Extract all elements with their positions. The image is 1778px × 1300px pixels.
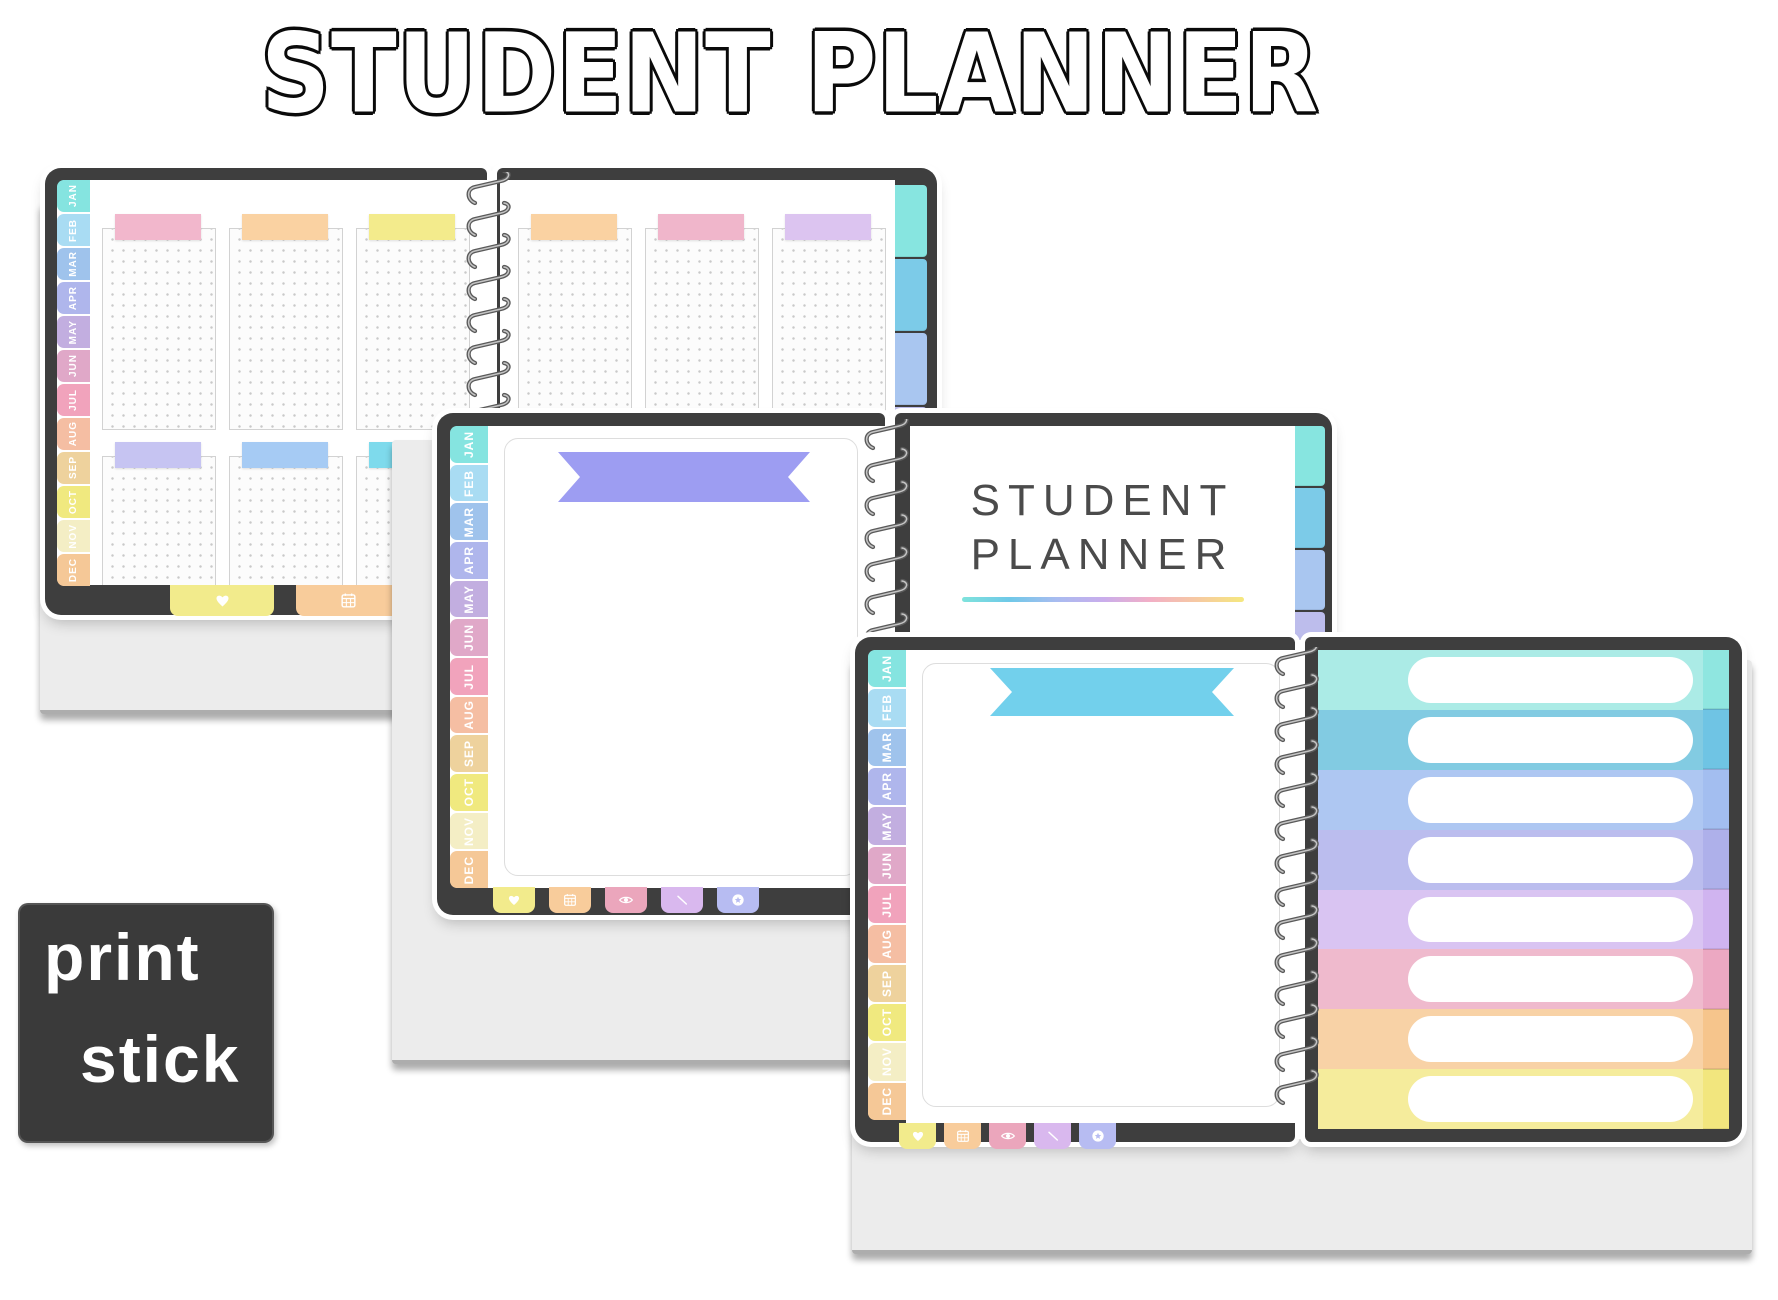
spiral-coil: [867, 548, 907, 580]
month-tab-label: OCT: [880, 1008, 894, 1036]
spiral-coil: [1277, 906, 1317, 938]
spiral-coil: [867, 449, 907, 481]
month-tab-label: MAY: [68, 320, 79, 344]
subject-edge-tab-6[interactable]: [1703, 949, 1729, 1009]
month-tab-label: MAR: [462, 507, 476, 537]
eye-tab[interactable]: [989, 1123, 1026, 1149]
box-header-label: [242, 214, 328, 240]
heart-icon: [506, 892, 522, 908]
month-tab-apr[interactable]: APR: [868, 768, 906, 805]
month-tab-sep[interactable]: SEP: [868, 965, 906, 1002]
page-edge-tab-2[interactable]: [1295, 488, 1325, 548]
page-title: STUDENT PLANNER: [210, 10, 1370, 138]
month-tab-label: JAN: [462, 431, 476, 458]
month-tab-dec[interactable]: DEC: [450, 851, 488, 888]
subject-row-3: [1318, 770, 1703, 830]
page-edge-tab-3[interactable]: [1295, 550, 1325, 610]
month-tab-mar[interactable]: MAR: [450, 503, 488, 540]
month-tab-label: MAY: [880, 812, 894, 841]
subject-rows-page: [1318, 650, 1703, 1129]
subject-edge-tab-2[interactable]: [1703, 709, 1729, 769]
box-header-label: [369, 214, 455, 240]
month-tab-label: SEP: [462, 740, 476, 767]
page-border: [922, 663, 1280, 1107]
month-tab-label: FEB: [68, 219, 79, 242]
spiral-coil: [1277, 708, 1317, 740]
dotted-note-box: [356, 228, 470, 430]
month-tab-label: APR: [880, 772, 894, 800]
spiral-coil: [1277, 675, 1317, 707]
spiral-coil: [469, 172, 509, 203]
subject-edge-tab-4[interactable]: [1703, 829, 1729, 889]
month-tab-label: DEC: [880, 1087, 894, 1115]
spiral-coil: [1277, 873, 1317, 905]
calendar-icon: [339, 591, 358, 610]
subject-edge-tab-3[interactable]: [1703, 769, 1729, 829]
spiral-coil: [1277, 741, 1317, 773]
subject-row-2: [1318, 710, 1703, 770]
box-header-label: [531, 214, 617, 240]
month-tab-jun[interactable]: JUN: [57, 350, 90, 382]
month-tab-label: MAR: [68, 251, 79, 277]
subject-name-field: [1408, 897, 1693, 943]
spiral-coil: [469, 235, 509, 267]
box-header-label: [242, 442, 328, 468]
month-tab-bar: JANFEBMARAPRMAYJUNJULAUGSEPOCTNOVDEC: [450, 426, 488, 888]
planner3-left-page: [906, 650, 1295, 1123]
calendar-icon: [955, 1128, 971, 1144]
month-tab-label: JUL: [880, 892, 894, 918]
spiral-coil: [469, 203, 509, 235]
page-edge-tab-3[interactable]: [895, 333, 927, 405]
month-tab-label: JUN: [880, 852, 894, 879]
month-tab-may[interactable]: MAY: [868, 807, 906, 844]
brand-logo-line1: print: [44, 919, 201, 995]
calendar-icon: [562, 892, 578, 908]
month-tab-may[interactable]: MAY: [57, 316, 90, 348]
heart-icon: [910, 1128, 926, 1144]
spiral-coil: [1277, 807, 1317, 839]
subject-name-field: [1408, 777, 1693, 823]
subject-row-7: [1318, 1009, 1703, 1069]
spiral-coil: [469, 267, 509, 299]
month-tab-oct[interactable]: OCT: [868, 1004, 906, 1041]
spiral-coil: [867, 482, 907, 514]
month-tab-label: DEC: [462, 856, 476, 884]
month-tab-mar[interactable]: MAR: [868, 729, 906, 766]
planner2-left-page: [488, 426, 885, 888]
eye-tab[interactable]: [605, 887, 647, 913]
month-tab-label: NOV: [880, 1047, 894, 1076]
dotted-note-box: [102, 228, 216, 430]
star-icon: [1090, 1128, 1106, 1144]
rainbow-underline: [962, 597, 1244, 602]
spiral-coil: [469, 363, 509, 395]
month-tab-oct[interactable]: OCT: [450, 774, 488, 811]
subject-row-5: [1318, 890, 1703, 950]
month-tab-apr[interactable]: APR: [450, 542, 488, 579]
subject-edge-tab-7[interactable]: [1703, 1009, 1729, 1069]
month-tab-aug[interactable]: AUG: [57, 418, 90, 450]
subject-edge-tab-5[interactable]: [1703, 889, 1729, 949]
month-tab-may[interactable]: MAY: [450, 581, 488, 618]
month-tab-jan[interactable]: JAN: [57, 180, 90, 212]
month-tab-label: JUL: [68, 389, 79, 411]
spiral-coil: [867, 515, 907, 547]
month-tab-bar: JANFEBMARAPRMAYJUNJULAUGSEPOCTNOVDEC: [57, 180, 90, 586]
cover-title-line1: STUDENT: [910, 474, 1295, 528]
month-tab-label: AUG: [880, 929, 894, 959]
month-tab-label: JAN: [68, 184, 79, 207]
spiral-coil: [1277, 1038, 1317, 1070]
subject-name-field: [1408, 657, 1693, 703]
month-tab-aug[interactable]: AUG: [450, 697, 488, 734]
cover-title-line2: PLANNER: [910, 528, 1295, 582]
bottom-icon-bar: [493, 887, 759, 915]
page-border: [504, 438, 858, 876]
month-tab-jun[interactable]: JUN: [450, 619, 488, 656]
month-tab-label: SEP: [68, 456, 79, 479]
banner-ribbon: [558, 452, 810, 502]
spiral-coil: [867, 419, 907, 448]
month-tab-oct[interactable]: OCT: [57, 486, 90, 518]
page-edge-tab-1[interactable]: [1295, 426, 1325, 486]
brand-logo-line2: stick: [80, 1021, 240, 1097]
month-tab-sep[interactable]: SEP: [450, 735, 488, 772]
subject-row-4: [1318, 830, 1703, 890]
month-tab-label: APR: [462, 546, 476, 574]
month-tab-label: JUL: [462, 664, 476, 690]
subject-name-field: [1408, 1016, 1693, 1062]
month-tab-aug[interactable]: AUG: [868, 925, 906, 962]
month-tab-label: FEB: [880, 694, 894, 721]
spiral-coil: [469, 299, 509, 331]
heart-tab[interactable]: [170, 585, 274, 616]
subject-edge-tab-1[interactable]: [1703, 650, 1729, 709]
month-tab-jan[interactable]: JAN: [450, 426, 488, 463]
box-header-label: [115, 442, 201, 468]
pen-tab[interactable]: [1034, 1123, 1071, 1149]
month-tab-label: JAN: [880, 655, 894, 682]
month-tab-jul[interactable]: JUL: [868, 886, 906, 923]
month-tab-label: AUG: [68, 421, 79, 446]
subject-name-field: [1408, 956, 1693, 1002]
month-tab-dec[interactable]: DEC: [57, 554, 90, 586]
month-tab-label: DEC: [68, 558, 79, 582]
month-tab-jan[interactable]: JAN: [868, 650, 906, 687]
spiral-coil: [1277, 972, 1317, 1004]
spiral-coil: [1277, 1071, 1317, 1103]
banner-ribbon: [990, 668, 1234, 716]
month-tab-label: SEP: [880, 970, 894, 997]
spiral-coil: [1277, 774, 1317, 806]
month-tab-nov[interactable]: NOV: [450, 813, 488, 850]
dotted-note-box: [229, 456, 343, 585]
subject-edge-tab-8[interactable]: [1703, 1069, 1729, 1129]
box-header-label: [785, 214, 871, 240]
heart-icon: [213, 591, 232, 610]
month-tab-label: NOV: [462, 817, 476, 846]
spiral-binding: [1268, 647, 1332, 1137]
pen-tab[interactable]: [661, 887, 703, 913]
spiral-coil: [469, 331, 509, 363]
month-tab-label: OCT: [68, 490, 79, 514]
heart-tab[interactable]: [493, 887, 535, 913]
month-tab-mar[interactable]: MAR: [57, 248, 90, 280]
star-icon: [730, 892, 746, 908]
bottom-icon-bar: [899, 1123, 1116, 1151]
calendar-tab[interactable]: [296, 585, 400, 616]
subject-name-field: [1408, 837, 1693, 883]
month-tab-feb[interactable]: FEB: [57, 214, 90, 246]
dotted-note-box: [102, 456, 216, 585]
month-tab-nov[interactable]: NOV: [868, 1043, 906, 1080]
spiral-coil: [1277, 1005, 1317, 1037]
subject-row-8: [1318, 1069, 1703, 1129]
brand-logo: print stick: [18, 903, 274, 1143]
month-tab-label: FEB: [462, 470, 476, 497]
calendar-tab[interactable]: [944, 1123, 981, 1149]
heart-tab[interactable]: [899, 1123, 936, 1149]
month-tab-apr[interactable]: APR: [57, 282, 90, 314]
star-tab[interactable]: [717, 887, 759, 913]
month-tab-jul[interactable]: JUL: [57, 384, 90, 416]
month-tab-label: JUN: [462, 624, 476, 651]
star-tab[interactable]: [1079, 1123, 1116, 1149]
page-edge-tab-2[interactable]: [895, 259, 927, 331]
month-tab-label: APR: [68, 286, 79, 310]
month-tab-sep[interactable]: SEP: [57, 452, 90, 484]
spiral-coil: [1277, 647, 1317, 674]
calendar-tab[interactable]: [549, 887, 591, 913]
box-header-label: [115, 214, 201, 240]
eye-icon: [1000, 1128, 1016, 1144]
spiral-coil: [867, 581, 907, 613]
month-tab-label: MAY: [462, 585, 476, 614]
month-tab-label: JUN: [68, 354, 79, 377]
month-tab-bar: JANFEBMARAPRMAYJUNJULAUGSEPOCTNOVDEC: [868, 650, 906, 1120]
box-header-label: [658, 214, 744, 240]
eye-icon: [618, 892, 634, 908]
month-tab-jul[interactable]: JUL: [450, 658, 488, 695]
spiral-coil: [1277, 840, 1317, 872]
month-tab-nov[interactable]: NOV: [57, 520, 90, 552]
month-tab-label: NOV: [68, 524, 79, 549]
page-edge-tab-1[interactable]: [895, 185, 927, 257]
page-edge-tab-bar: [1703, 650, 1729, 1129]
pen-icon: [1045, 1128, 1061, 1144]
dotted-note-box: [229, 228, 343, 430]
subject-row-1: [1318, 650, 1703, 710]
subject-name-field: [1408, 1076, 1693, 1122]
month-tab-label: MAR: [880, 732, 894, 762]
month-tab-feb[interactable]: FEB: [868, 689, 906, 726]
month-tab-label: OCT: [462, 778, 476, 806]
spiral-coil: [1277, 939, 1317, 971]
month-tab-label: AUG: [462, 700, 476, 730]
pen-icon: [674, 892, 690, 908]
subject-row-6: [1318, 949, 1703, 1009]
planner-mockup-3: JANFEBMARAPRMAYJUNJULAUGSEPOCTNOVDEC: [852, 637, 1755, 1255]
month-tab-dec[interactable]: DEC: [868, 1083, 906, 1120]
month-tab-feb[interactable]: FEB: [450, 465, 488, 502]
subject-name-field: [1408, 717, 1693, 763]
month-tab-jun[interactable]: JUN: [868, 847, 906, 884]
